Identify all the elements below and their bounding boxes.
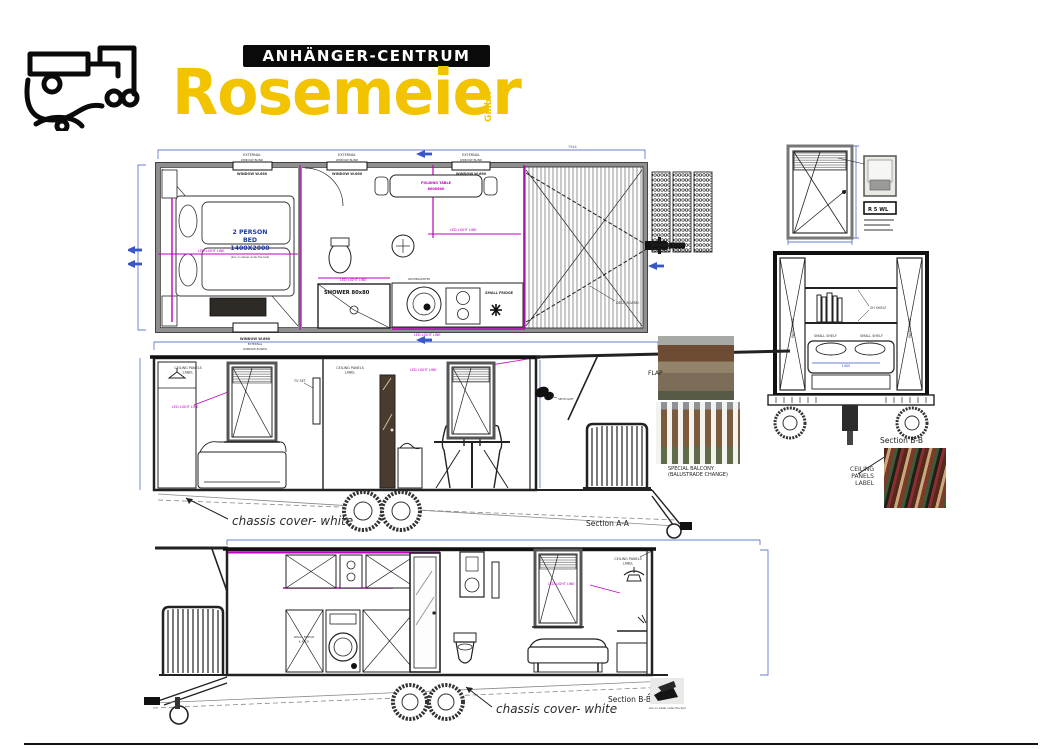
chassis-note-bb: chassis cover- white xyxy=(466,687,617,716)
corner-jack-icon xyxy=(648,262,664,270)
sink-elev xyxy=(398,443,422,488)
svg-text:SMALL SHELF: SMALL SHELF xyxy=(860,334,883,338)
window2-elev xyxy=(448,363,494,438)
window-detail-tag: R 5 WL xyxy=(868,207,889,213)
svg-text:LABEL: LABEL xyxy=(345,371,356,375)
svg-text:LABEL: LABEL xyxy=(183,371,194,375)
svg-text:LED LIGHT LINE: LED LIGHT LINE xyxy=(340,278,367,282)
svg-text:LED LIGHT LINE: LED LIGHT LINE xyxy=(450,228,477,232)
balcony-caption: SPECIAL BALCONY(BALUSTRADE CHANGE) xyxy=(668,466,758,478)
svg-text:WINDOW W.660: WINDOW W.660 xyxy=(332,172,363,176)
corner-jack-icon xyxy=(128,246,142,254)
brand-gmbh: GmbH xyxy=(484,91,494,122)
svg-text:chassis cover- white: chassis cover- white xyxy=(496,702,617,716)
railing-elev xyxy=(583,424,651,488)
svg-text:SMALL SHELF: SMALL SHELF xyxy=(814,334,837,338)
svg-text:SPOTLIGHT: SPOTLIGHT xyxy=(558,397,574,401)
snowflake-icon xyxy=(490,304,502,316)
texture-photo xyxy=(884,448,946,508)
svg-text:chassis cover- white: chassis cover- white xyxy=(232,514,353,528)
texture-label-line2: LABEL xyxy=(855,480,874,487)
corner-jack-icon xyxy=(128,260,142,268)
undercarriage-bb xyxy=(144,675,668,724)
svg-text:WARDROBE: WARDROBE xyxy=(908,318,912,338)
svg-text:(box on wheel under the bed): (box on wheel under the bed) xyxy=(231,255,269,259)
wheel-chock-photo: box on wheel under the bed xyxy=(649,678,686,710)
svg-text:WINDOW BLIND: WINDOW BLIND xyxy=(460,158,482,162)
svg-text:600X800: 600X800 xyxy=(428,187,445,191)
bed-end-view: SMALL SHELF SMALL SHELF 1400 xyxy=(808,334,894,389)
svg-text:TV SET: TV SET xyxy=(293,379,307,383)
fine-print xyxy=(864,220,894,230)
wardrobe-elev xyxy=(158,362,196,488)
svg-text:WINDOW BLIND: WINDOW BLIND xyxy=(241,158,263,162)
flap-label: FLAP xyxy=(648,370,663,377)
section-bb-end-caption: Section B-B xyxy=(880,436,923,445)
drawing-sheet: ANHÄNGER-CENTRUM Rosemeier GmbH 7544 xyxy=(0,0,1063,749)
section-aa-caption: Section A-A xyxy=(586,519,630,528)
window-detail-drawing: R 5 WL xyxy=(778,140,900,248)
svg-text:1400: 1400 xyxy=(842,364,851,368)
cabin-photo xyxy=(658,336,734,400)
svg-text:2 PERSON: 2 PERSON xyxy=(233,229,268,236)
svg-text:2H SHELF: 2H SHELF xyxy=(870,306,887,310)
wardrobe-right: WARDROBE xyxy=(897,258,922,390)
svg-text:LED LIGHT LINE: LED LIGHT LINE xyxy=(198,249,225,253)
kitchen-cabinets-elev: SMALL FRIDGE & RACK xyxy=(286,555,416,672)
svg-text:WASHING/DRYER: WASHING/DRYER xyxy=(408,277,430,281)
section-bb-drawing: CEILING PANELS LABEL CEILING PANELS LABE… xyxy=(128,535,788,747)
door-elev xyxy=(380,375,395,488)
window1-elev xyxy=(224,363,280,442)
svg-text:BED: BED xyxy=(243,237,257,244)
chassis-note-aa: chassis cover- white xyxy=(186,498,353,528)
svg-text:SMALL FRIDGE: SMALL FRIDGE xyxy=(485,291,514,295)
ramp-panels xyxy=(652,172,712,252)
page-bottom-rule xyxy=(24,743,1038,745)
svg-text:CEILING PANELS: CEILING PANELS xyxy=(614,557,642,561)
svg-text:EXTERNAL: EXTERNAL xyxy=(462,153,480,157)
shower-door-elev xyxy=(410,553,440,672)
balcony-photo xyxy=(656,402,740,464)
svg-text:& RACK: & RACK xyxy=(299,640,310,644)
railing-bb xyxy=(159,607,227,675)
svg-text:7544: 7544 xyxy=(568,145,577,149)
ceiling-panel-sample: CEILING PANELS LABEL xyxy=(828,448,953,512)
svg-text:WINDOW W.660: WINDOW W.660 xyxy=(237,172,268,176)
svg-text:LABEL: LABEL xyxy=(623,562,634,566)
svg-text:1400X2000: 1400X2000 xyxy=(230,245,270,252)
boiler xyxy=(460,552,484,597)
brand-name: Rosemeier xyxy=(172,56,521,130)
floor-plan-drawing: 7544 EXTERNAL WINDOW BLIND EXTERNAL WIND… xyxy=(128,138,720,353)
svg-text:box on wheel under the bed: box on wheel under the bed xyxy=(649,706,686,710)
spotlight: SPOTLIGHT xyxy=(534,385,574,402)
tv-cabinet xyxy=(210,298,266,316)
flap-open xyxy=(155,548,229,597)
svg-text:FOLDING TABLE: FOLDING TABLE xyxy=(421,181,452,185)
window-bb-elev xyxy=(532,550,584,627)
svg-text:LED LIGHT LINE: LED LIGHT LINE xyxy=(172,405,199,409)
svg-text:EXTERNAL: EXTERNAL xyxy=(338,153,356,157)
svg-text:SMALL FRIDGE: SMALL FRIDGE xyxy=(294,635,315,639)
svg-text:CEILING PANELS: CEILING PANELS xyxy=(174,366,202,370)
corner-jack-icon xyxy=(416,150,432,158)
svg-text:CEILING PANELS: CEILING PANELS xyxy=(336,366,364,370)
svg-text:DECK BOARD: DECK BOARD xyxy=(616,301,639,305)
svg-text:WINDOW BLIND: WINDOW BLIND xyxy=(336,158,358,162)
deck: DECK BOARD xyxy=(524,165,645,330)
led-label-bb: LED LIGHT LINE xyxy=(548,582,575,586)
led-label-aa: LED LIGHT LINE xyxy=(410,368,437,372)
wall-panel xyxy=(492,562,499,598)
section-bb-caption: Section B-B xyxy=(608,695,651,704)
trailer-logo-icon xyxy=(22,36,147,131)
svg-text:EXTERNAL: EXTERNAL xyxy=(243,153,261,157)
